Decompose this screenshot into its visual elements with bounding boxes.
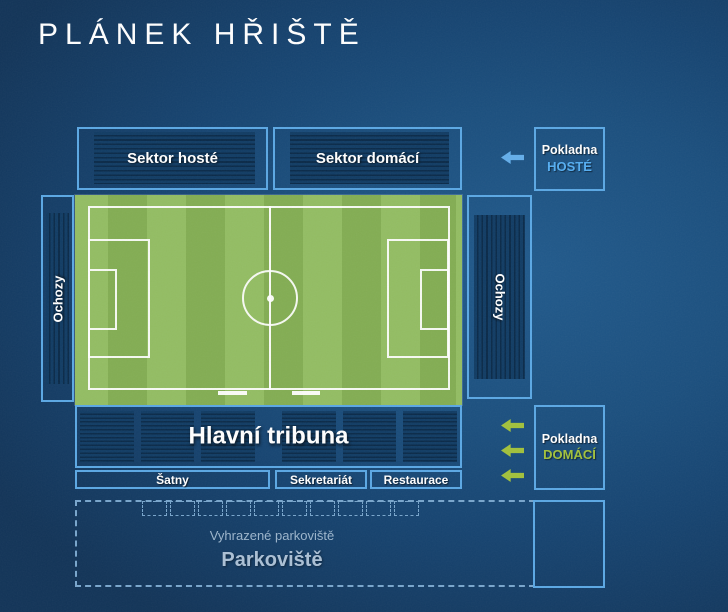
arrow-left-icon (501, 151, 524, 164)
ticket-office-domaci: Pokladna DOMÁCÍ (534, 405, 605, 490)
parking-space (254, 501, 279, 516)
facility-satny: Šatny (75, 470, 270, 489)
home-arrows (501, 419, 524, 482)
parking-space (170, 501, 195, 516)
page-title: PLÁNEK HŘIŠTĚ (38, 18, 366, 52)
parking-space (226, 501, 251, 516)
facility-sekretariat: Sekretariát (275, 470, 367, 489)
parking-space (338, 501, 363, 516)
parking-space (198, 501, 223, 516)
parking-texts: Vyhrazené parkoviště Parkoviště (77, 528, 467, 572)
unlabeled-box (533, 500, 605, 588)
arrow-left-icon (501, 444, 524, 457)
ticket-office-domaci-line2: DOMÁCÍ (543, 447, 596, 463)
ticket-office-hoste-line1: Pokladna (542, 143, 598, 159)
stand-sektor-domaci: Sektor domácí (273, 127, 462, 190)
stand-sektor-hoste: Sektor hosté (77, 127, 268, 190)
facility-restaurace: Restaurace (370, 470, 462, 489)
parking-space (142, 501, 167, 516)
facility-sekretariat-label: Sekretariát (290, 473, 352, 487)
stand-ochozy-left-label: Ochozy (50, 275, 65, 322)
stand-hlavni-tribuna-label: Hlavní tribuna (77, 422, 460, 450)
parking-label: Parkoviště (77, 549, 467, 572)
stand-ochozy-right: Ochozy (467, 195, 532, 399)
dugout-right (292, 391, 320, 395)
facility-restaurace-label: Restaurace (384, 473, 449, 487)
parking-space (394, 501, 419, 516)
arrow-left-icon (501, 469, 524, 482)
goal-area-right (420, 269, 449, 330)
stand-sektor-hoste-label: Sektor hosté (79, 149, 266, 166)
dugout-left (218, 391, 247, 395)
stand-ochozy-right-label: Ochozy (492, 274, 507, 321)
football-pitch (75, 195, 462, 405)
parking-area: Vyhrazené parkoviště Parkoviště (75, 500, 535, 587)
parking-spaces (142, 501, 419, 516)
stand-ochozy-left: Ochozy (41, 195, 74, 402)
parking-space (282, 501, 307, 516)
reserved-parking-label: Vyhrazené parkoviště (77, 528, 467, 543)
parking-space (310, 501, 335, 516)
arrow-left-icon (501, 419, 524, 432)
stadium-map: PLÁNEK HŘIŠTĚ Sektor hosté Sektor domácí… (0, 0, 728, 612)
goal-area-left (88, 269, 117, 330)
facility-satny-label: Šatny (156, 473, 189, 487)
ticket-office-hoste: Pokladna HOSTÉ (534, 127, 605, 191)
ticket-office-domaci-line1: Pokladna (542, 432, 598, 448)
ticket-office-hoste-line2: HOSTÉ (547, 159, 592, 175)
center-spot (267, 295, 274, 302)
parking-space (366, 501, 391, 516)
stand-sektor-domaci-label: Sektor domácí (275, 149, 460, 166)
stand-hlavni-tribuna: Hlavní tribuna (75, 405, 462, 468)
